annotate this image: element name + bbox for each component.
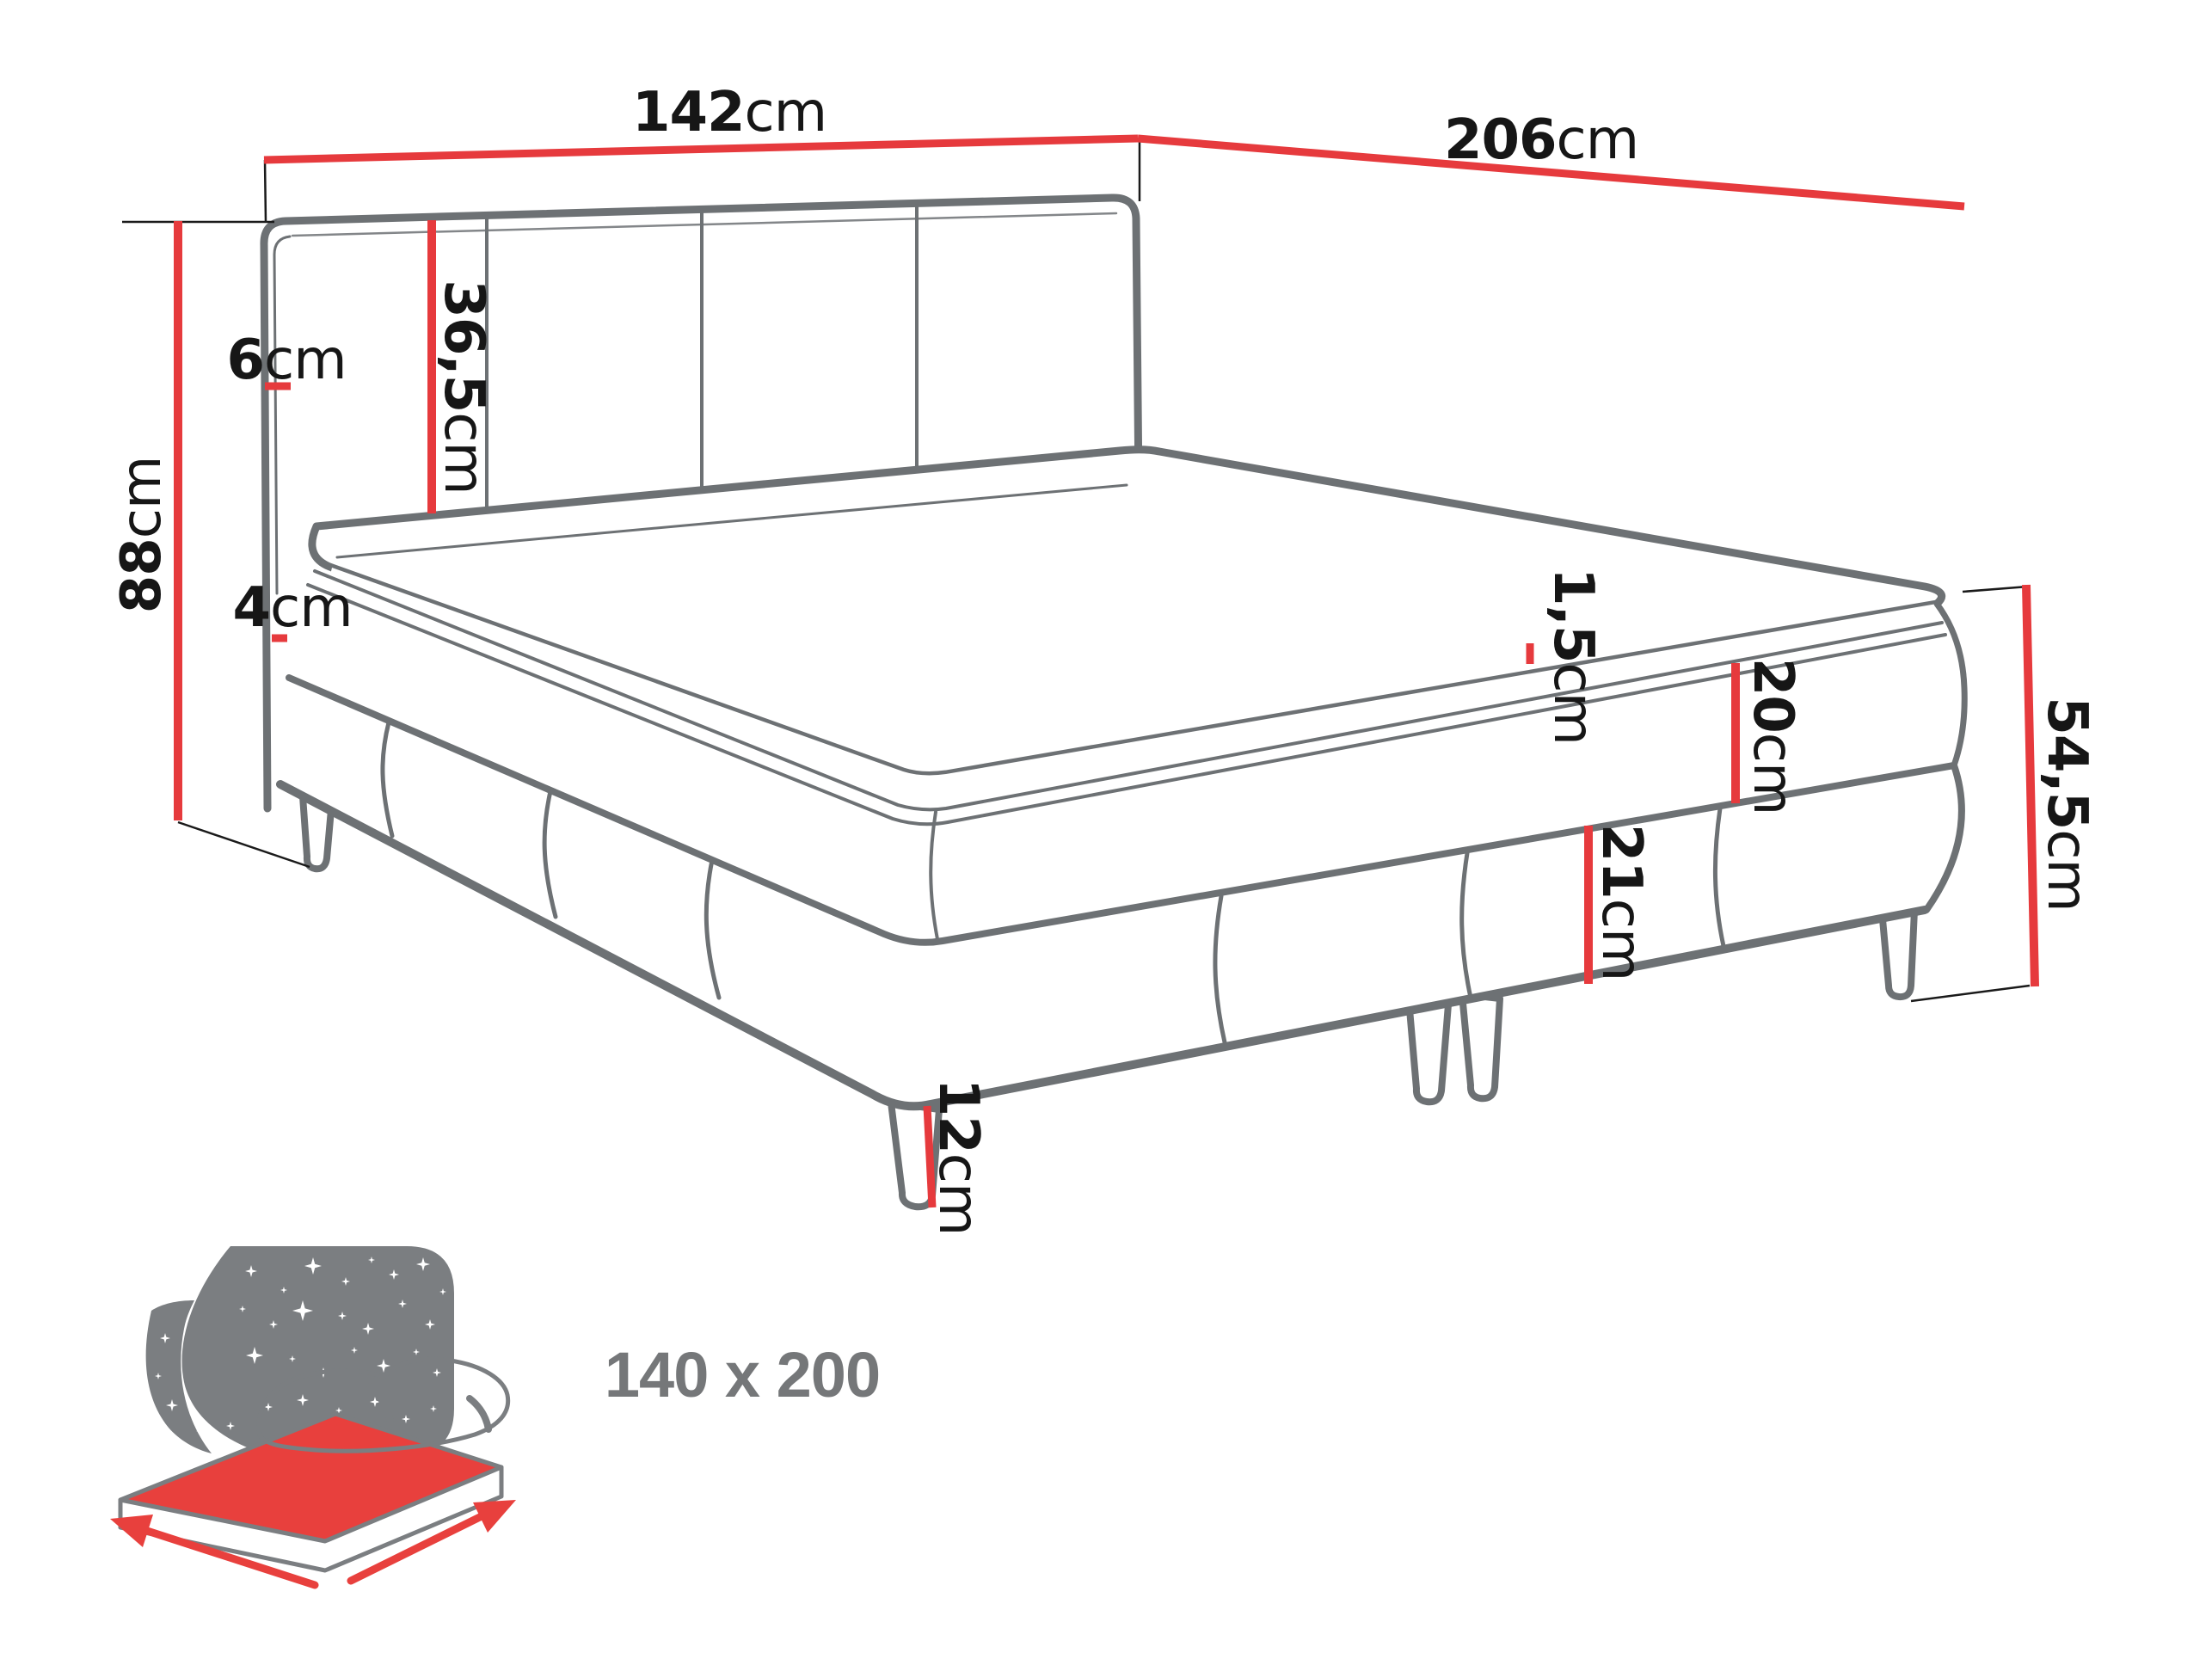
bed-line-art [264, 198, 1964, 1207]
mattress-stack [280, 450, 1964, 1107]
ext-height-bottom [178, 822, 310, 867]
dim-line-side-height [2026, 585, 2035, 986]
icon-pillow-fold-2 [470, 1398, 488, 1429]
ext-side-top [1963, 587, 2028, 592]
bed-dimension-diagram-page: 142cm 206cm 88cm 6cm 36,5cm 4cm 1,5cm 20… [0, 0, 2212, 1659]
dim-label-side-height: 54,5cm [2035, 697, 2098, 911]
ext-width-left [265, 160, 266, 223]
dim-label-mattress: 20cm [1741, 658, 1804, 815]
dim-label-leg: 12cm [926, 1078, 990, 1236]
dim-label-bed-length: 206cm [1444, 108, 1638, 172]
dim-label-topper: 4cm [232, 576, 352, 640]
bed-leg-middle-2 [1462, 994, 1500, 1098]
starry-night-bed-icon [110, 1246, 516, 1585]
dim-label-headboard-width: 142cm [632, 81, 826, 144]
dim-label-topper-seam: 1,5cm [1541, 568, 1605, 745]
ext-side-bottom [1911, 986, 2030, 1001]
bed-leg-far [1882, 910, 1914, 997]
dim-label-total-height: 88cm [110, 457, 174, 614]
dim-label-base: 21cm [1589, 824, 1653, 981]
bed-leg-middle-1 [1409, 999, 1448, 1102]
bed-dimension-diagram: 142cm 206cm 88cm 6cm 36,5cm 4cm 1,5cm 20… [0, 0, 2212, 1659]
dim-label-headboard-thickness: 6cm [226, 329, 346, 392]
mattress-size-label: 140 x 200 [605, 1339, 880, 1410]
dim-label-headboard-panel: 36,5cm [432, 280, 495, 494]
